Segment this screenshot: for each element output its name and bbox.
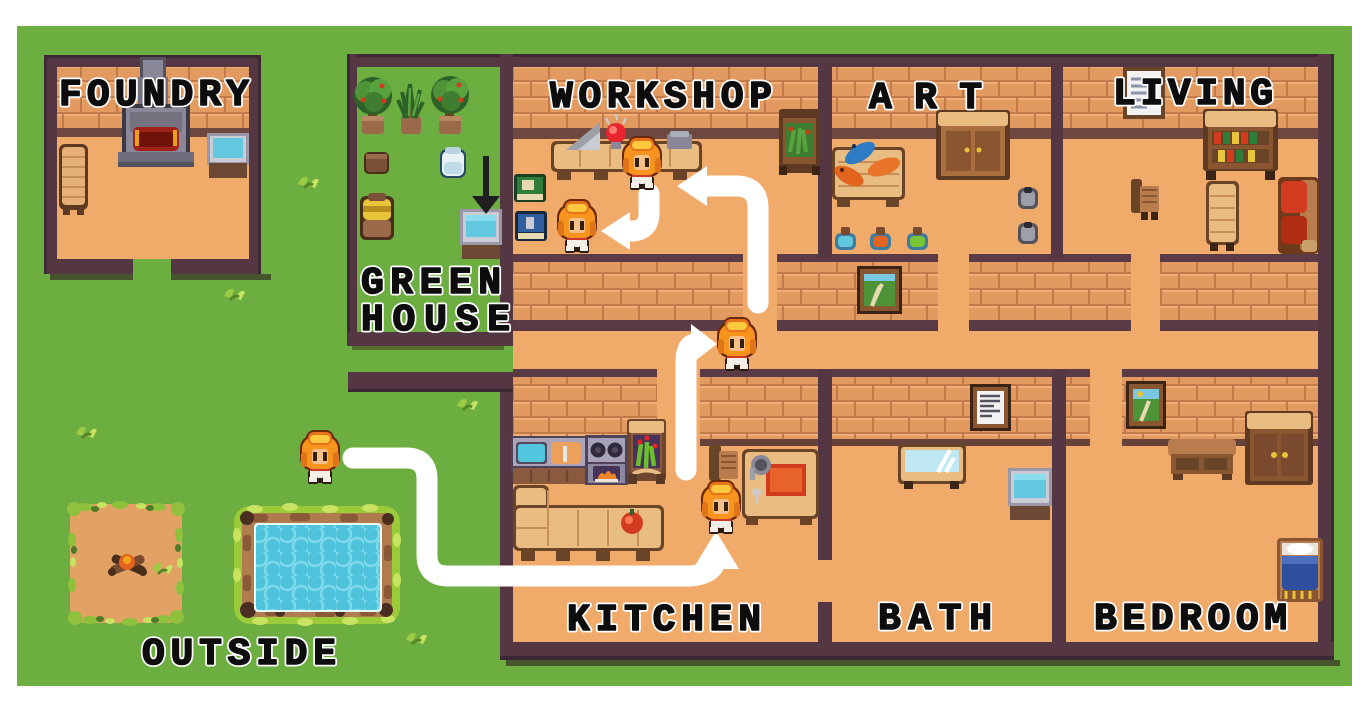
svg-text:KITCHEN: KITCHEN — [567, 599, 761, 642]
svg-text:OUTSIDE: OUTSIDE — [142, 633, 336, 676]
svg-text:HOUSE: HOUSE — [361, 299, 510, 342]
svg-text:FOUNDRY: FOUNDRY — [59, 74, 249, 117]
svg-text:ART: ART — [869, 77, 982, 120]
svg-text:BEDROOM: BEDROOM — [1094, 598, 1287, 641]
